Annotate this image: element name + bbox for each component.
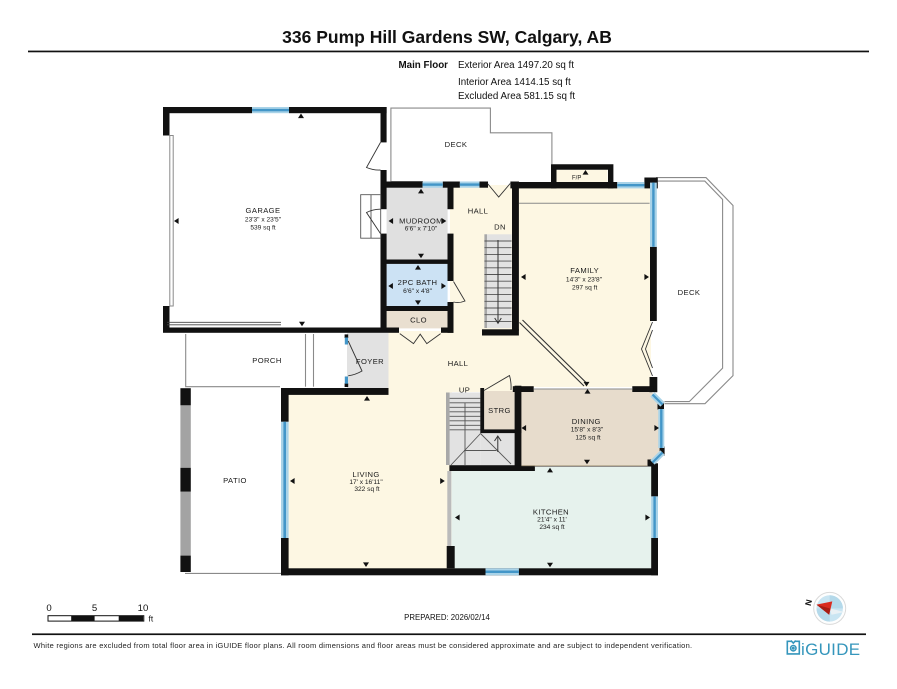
svg-text:CLO: CLO xyxy=(410,316,427,325)
svg-text:322 sq ft: 322 sq ft xyxy=(354,486,379,493)
svg-text:234 sq ft: 234 sq ft xyxy=(539,524,564,531)
svg-text:DINING: DINING xyxy=(572,417,601,426)
svg-text:6'6" x 4'8": 6'6" x 4'8" xyxy=(403,288,432,295)
svg-text:21'4" x 11': 21'4" x 11' xyxy=(537,517,567,524)
svg-text:Interior Area 1414.15 sq ft: Interior Area 1414.15 sq ft xyxy=(458,77,571,88)
svg-text:UP: UP xyxy=(459,386,470,395)
svg-text:iGUIDE: iGUIDE xyxy=(801,640,860,659)
svg-text:5: 5 xyxy=(92,603,97,614)
svg-text:PORCH: PORCH xyxy=(252,356,281,365)
svg-text:2PC BATH: 2PC BATH xyxy=(398,278,438,287)
svg-text:F/P: F/P xyxy=(572,176,581,182)
svg-text:297 sq ft: 297 sq ft xyxy=(572,285,597,292)
svg-text:Main Floor: Main Floor xyxy=(398,60,448,71)
svg-text:LIVING: LIVING xyxy=(352,470,379,479)
svg-text:125 sq ft: 125 sq ft xyxy=(575,435,600,442)
svg-text:14'3" x 23'8": 14'3" x 23'8" xyxy=(566,277,603,284)
svg-text:GARAGE: GARAGE xyxy=(246,206,281,215)
svg-text:336 Pump Hill Gardens SW, Calg: 336 Pump Hill Gardens SW, Calgary, AB xyxy=(282,27,612,47)
svg-text:Exterior Area 1497.20 sq ft: Exterior Area 1497.20 sq ft xyxy=(458,60,574,71)
svg-text:Excluded Area 581.15 sq ft: Excluded Area 581.15 sq ft xyxy=(458,91,575,102)
svg-text:HALL: HALL xyxy=(468,207,489,216)
svg-text:23'3" x 23'5": 23'3" x 23'5" xyxy=(245,217,282,224)
svg-text:PREPARED: 2026/02/14: PREPARED: 2026/02/14 xyxy=(404,613,490,622)
svg-text:FAMILY: FAMILY xyxy=(570,266,599,275)
svg-text:White regions are excluded fro: White regions are excluded from total fl… xyxy=(34,641,693,650)
svg-text:15'8" x 8'3": 15'8" x 8'3" xyxy=(571,427,604,434)
svg-text:0: 0 xyxy=(46,603,51,614)
svg-text:FOYER: FOYER xyxy=(356,357,384,366)
svg-text:KITCHEN: KITCHEN xyxy=(533,508,569,517)
svg-text:DECK: DECK xyxy=(678,288,701,297)
svg-text:HALL: HALL xyxy=(448,359,469,368)
svg-text:STRG: STRG xyxy=(488,406,511,415)
svg-text:ft: ft xyxy=(149,614,154,624)
svg-text:17' x 16'11": 17' x 16'11" xyxy=(349,479,383,486)
svg-text:6'6" x 7'10": 6'6" x 7'10" xyxy=(405,226,438,233)
svg-text:539 sq ft: 539 sq ft xyxy=(250,225,275,232)
svg-text:MUDROOM: MUDROOM xyxy=(399,217,443,226)
svg-text:10: 10 xyxy=(138,603,149,614)
svg-text:DECK: DECK xyxy=(445,140,468,149)
svg-text:PATIO: PATIO xyxy=(223,476,247,485)
svg-text:DN: DN xyxy=(494,223,506,232)
